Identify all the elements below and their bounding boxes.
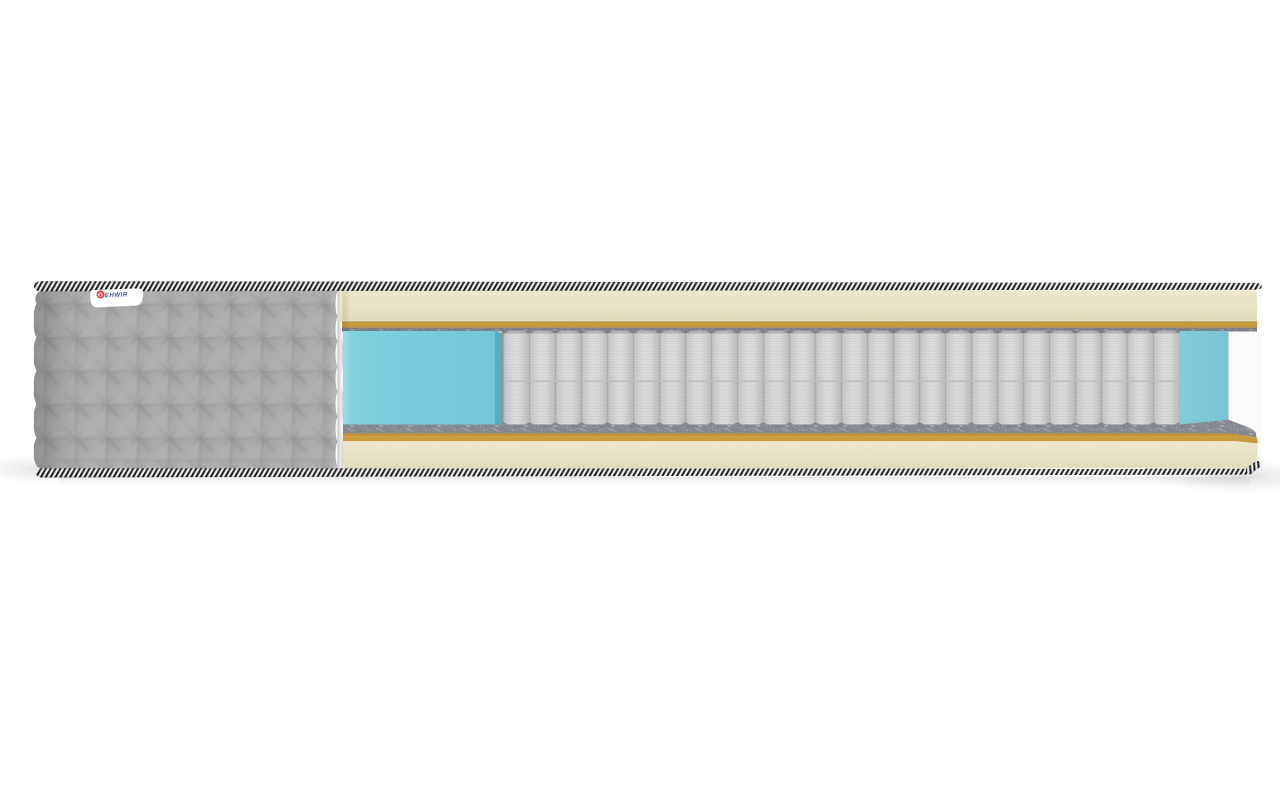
svg-text:EHWIR: EHWIR — [105, 291, 128, 299]
